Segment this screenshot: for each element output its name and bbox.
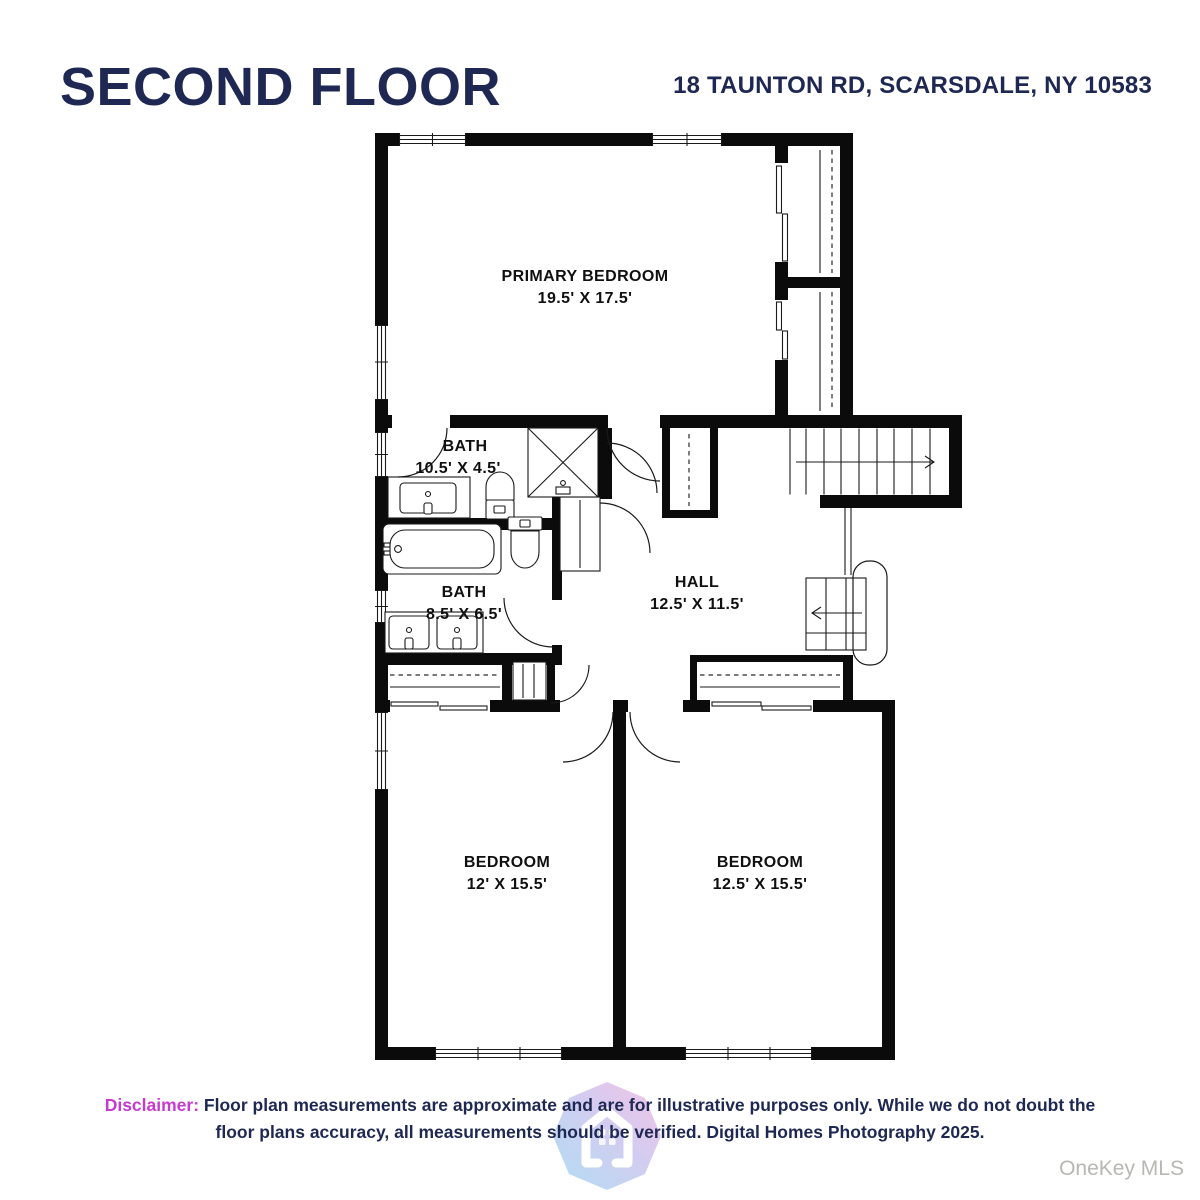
door-arc (551, 665, 589, 703)
window (399, 133, 466, 146)
room-label-primary-bedroom: PRIMARY BEDROOM (502, 268, 669, 285)
room-labels: PRIMARY BEDROOM 19.5' X 17.5' BATH 10.5'… (415, 268, 807, 893)
sink-icon (388, 477, 470, 518)
room-label-bath-1: BATH (443, 438, 488, 455)
bathtub-icon (383, 524, 501, 574)
linen-closet (513, 662, 546, 700)
floor-plan-page: { "header": { "title": "SECOND FLOOR", "… (0, 0, 1200, 1200)
room-label-bath-2: BATH (442, 584, 487, 601)
door-arc (630, 712, 680, 762)
stairs-up (790, 429, 934, 495)
window (652, 133, 722, 146)
door-arc (563, 712, 613, 762)
room-label-bedroom-right: BEDROOM (717, 854, 803, 871)
floor-plan-svg: PRIMARY BEDROOM 19.5' X 17.5' BATH 10.5'… (0, 0, 1200, 1200)
window (435, 1047, 562, 1060)
window (685, 1047, 812, 1060)
room-dims-bath-1: 10.5' X 4.5' (415, 460, 500, 477)
shower-icon (528, 428, 598, 497)
window (375, 432, 388, 477)
sliding-door (391, 702, 811, 710)
room-dims-primary-bedroom: 19.5' X 17.5' (538, 290, 633, 307)
disclaimer-line1: Floor plan measurements are approximate … (204, 1095, 1095, 1115)
room-label-hall: HALL (675, 574, 719, 591)
door-arc (607, 428, 660, 481)
stairs-lower-flight (806, 508, 887, 665)
toilet-icon (508, 517, 542, 568)
stair-railing (845, 508, 851, 575)
disclaimer-line2: floor plans accuracy, all measurements s… (216, 1122, 985, 1142)
room-dims-bath-2: 8.5' X 6.5' (426, 606, 502, 623)
door-arc (607, 443, 657, 493)
door-arc (504, 598, 553, 647)
window (375, 712, 388, 790)
disclaimer-label: Disclaimer: (105, 1095, 199, 1115)
door-arc (600, 503, 650, 553)
room-dims-bedroom-left: 12' X 15.5' (467, 876, 548, 893)
room-dims-bedroom-right: 12.5' X 15.5' (713, 876, 808, 893)
linen-closet (560, 497, 600, 571)
disclaimer-text: Disclaimer: Floor plan measurements are … (100, 1092, 1100, 1146)
mls-watermark: OneKey MLS (1059, 1157, 1184, 1181)
room-label-bedroom-left: BEDROOM (464, 854, 550, 871)
stairs-direction-arrow (796, 456, 934, 468)
toilet-icon (486, 472, 514, 519)
window (375, 325, 388, 400)
room-dims-hall: 12.5' X 11.5' (650, 596, 744, 613)
